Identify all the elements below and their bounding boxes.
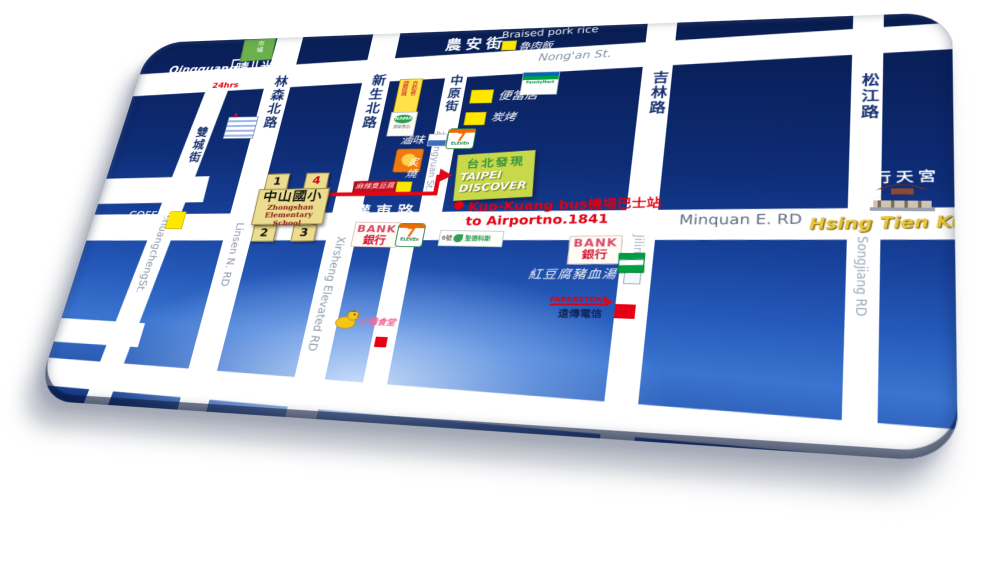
coffee-cafe-label-1: COFFEE <box>127 209 172 221</box>
yellow-marker <box>501 40 517 50</box>
seven-eleven-icon: 7 ELEVEn <box>394 223 426 247</box>
braised-pork-label-zh: 魯肉飯 <box>518 38 554 52</box>
building-flag-icon <box>234 113 237 117</box>
green-oval-logo: NAMA <box>393 115 413 124</box>
school-number-1: 1 <box>264 173 290 190</box>
road-label-nongan-zh: 農安街 <box>444 33 508 54</box>
zhongshan-school-sign: 1 4 中山國小 Zhongshan Elementary School 2 3 <box>247 172 331 240</box>
taipei-discover-sign: 台北發現 TAIPEI DISCOVER <box>453 150 535 201</box>
fareastone-label-zh: 遠傳電信 <box>557 306 602 320</box>
qingguang-hours: 24hrs <box>211 81 240 90</box>
fareastone-arrow-icon <box>605 298 614 305</box>
school-number-4: 4 <box>303 172 330 189</box>
red-marker <box>614 304 636 319</box>
road-label-minquan-en: Minquan E. RD <box>679 211 803 228</box>
yellow-marker <box>469 89 494 103</box>
road-label-songjiang-zh: 松江路 <box>854 73 881 121</box>
yellow-marker <box>463 112 486 125</box>
seven-eleven-icon: 7 ELEVEn <box>445 128 477 149</box>
fried-chicken-sign: 鹽酥雞 自助餐 <box>393 78 424 113</box>
health-store-sign: 6號 聖德科斯 <box>437 230 504 247</box>
familymart-mini-icon <box>617 253 645 273</box>
oval-logo-sign: NAMA 健康食品 <box>386 112 418 137</box>
map-screenshot: 農安街 Nong'an St. 雙城街 ShuangchengSt. 林森北路 … <box>0 0 1000 563</box>
oval-sign-sub: 健康食品 <box>389 124 415 129</box>
school-label-zh: 中山國小 <box>257 189 329 205</box>
duck-mascot-icon <box>332 308 361 330</box>
leaf-logo-icon <box>453 234 464 242</box>
familymart-mini-band-icon <box>619 259 644 265</box>
kuokuang-dot <box>453 201 464 210</box>
bank-label-zh: 銀行 <box>353 235 395 246</box>
seven-word: ELEVEn <box>396 238 423 242</box>
health-store-prefix: 6號 <box>441 234 453 242</box>
fareastone-label-en: FAREASTONE <box>549 296 609 306</box>
bus-route-line <box>328 191 437 196</box>
school-main-sign: 中山國小 Zhongshan Elementary School <box>251 188 330 225</box>
health-store-name: 聖德科斯 <box>464 234 491 243</box>
road-label-minquan-zh: 民權東路 <box>331 200 421 222</box>
road-label-jilin-zh: 吉林路 <box>643 71 672 117</box>
market-label: 市場 <box>253 40 266 54</box>
route-arrow-icon <box>438 169 454 183</box>
qingguang-label: Qingguang <box>168 63 239 77</box>
road-bottom <box>35 357 958 463</box>
market-sign: 市場 <box>240 37 276 61</box>
tofu-soup-label: 紅豆腐豬血湯 <box>527 265 617 282</box>
zhishao-label: 炙燒 <box>400 157 421 180</box>
bank-sign-east: BANK 銀行 <box>567 235 623 264</box>
road-label-songjiang-en: Songjiang RD <box>851 236 871 350</box>
kuokuang-line2: to Airportno.1841 <box>465 211 609 228</box>
bbq-label: 炭烤 <box>490 109 517 124</box>
map-panel: 農安街 Nong'an St. 雙城街 ShuangchengSt. 林森北路 … <box>35 12 958 463</box>
bank-label-zh: 銀行 <box>570 249 618 261</box>
familymart-label: FamilyMart <box>522 79 558 86</box>
duck-shop-label: 小鴨食堂 <box>358 314 397 328</box>
red-marker <box>374 337 388 348</box>
temple-icon <box>859 181 947 213</box>
bento-label: 便當店 <box>497 87 539 103</box>
school-label-en2: Elementary School <box>251 211 324 228</box>
bank-sign-west: BANK 銀行 <box>350 222 401 248</box>
building-icon <box>223 116 259 138</box>
seven-word: ELEVEn <box>446 142 473 146</box>
temple-label-en: Hsing Tien Kung <box>809 212 958 234</box>
coffee-cafe-label-2: CAFE <box>123 222 154 234</box>
